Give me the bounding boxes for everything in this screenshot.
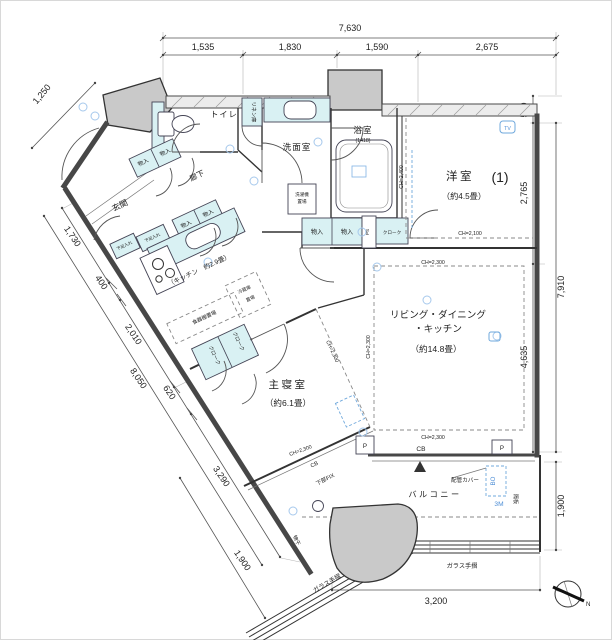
label-ch-2400: CH=2,400 (399, 165, 405, 189)
bathtub (336, 140, 392, 212)
label-storage: 物入 (341, 228, 353, 236)
label-ps: PS (365, 229, 370, 235)
balcony-ring-detail (313, 501, 324, 512)
label-laundry-2: 置場 (297, 198, 307, 205)
label-ch-2300: CH=2,300 (421, 435, 445, 441)
label-pillar: P (500, 445, 504, 452)
dim-right-seg2: 2,765 (519, 182, 529, 205)
label-linen: リネン庫 (250, 102, 258, 123)
label-cb: CB (416, 446, 426, 453)
label-3m: 3M (494, 501, 503, 508)
column-top-center (328, 70, 382, 110)
label-western-number: (1) (491, 169, 508, 185)
label-partition: 隔板 (512, 494, 520, 505)
dim-right-total: 7,910 (556, 276, 566, 299)
dim-bottom-3200: 3,200 (425, 596, 448, 606)
floor-plan-drawing: 7,630 1,535 1,830 1,590 2,675 540 2,765 … (0, 0, 612, 640)
label-master-size: （約6.1畳） (265, 397, 311, 408)
dim-top-seg2: 1,830 (279, 42, 302, 52)
label-ch-2300: CH=2,300 (421, 260, 445, 266)
label-western-room: 洋室 (446, 169, 474, 183)
label-bathroom-size: (1418) (356, 138, 371, 144)
dim-top-seg4: 2,675 (476, 42, 499, 52)
vanity-sink (284, 101, 316, 119)
label-ldk-1: リビング・ダイニング (390, 309, 486, 321)
label-bo: BO (490, 476, 497, 485)
label-tv: TV (504, 126, 511, 132)
label-western-size: （約4.5畳） (442, 191, 486, 201)
label-ldk-size: （約14.8畳） (410, 343, 461, 354)
label-toilet: トイレ (210, 110, 238, 119)
compass-north-label: N (586, 601, 590, 608)
floor-plan-page: 7,630 1,535 1,830 1,590 2,675 540 2,765 … (0, 0, 612, 640)
label-ch-2300: CH=2,300 (366, 335, 372, 359)
label-ch-2100: CH=2,100 (458, 231, 482, 237)
label-pipe-cover: 配管カバー (451, 476, 479, 484)
label-laundry-1: 洗濯機 (295, 191, 309, 198)
label-storage: 物入 (311, 228, 323, 236)
dim-top-total: 7,630 (339, 23, 362, 33)
label-master-bedroom: 主寝室 (269, 378, 308, 391)
label-glass-rail: ガラス手摺 (447, 562, 478, 570)
dim-right-bottom: 1,900 (556, 495, 566, 518)
label-washroom: 洗面室 (283, 141, 312, 152)
label-ldk-2: ・キッチン (414, 324, 462, 335)
label-balcony: バルコニー (408, 490, 461, 499)
label-pillar: P (363, 443, 367, 450)
label-bathroom: 浴室 (353, 124, 372, 135)
dim-top-seg3: 1,590 (366, 42, 389, 52)
wall-band-top-right (382, 104, 537, 116)
dim-top-seg1: 1,535 (192, 42, 215, 52)
